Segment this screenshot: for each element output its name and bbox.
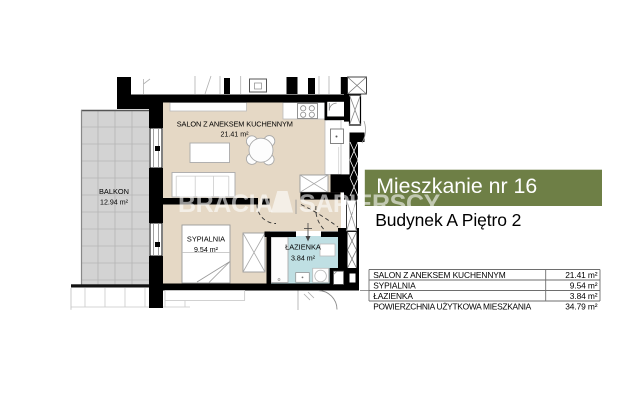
svg-text:34.79 m²: 34.79 m² bbox=[565, 301, 598, 311]
svg-text:3.84 m²: 3.84 m² bbox=[291, 254, 316, 262]
svg-text:21.41 m²: 21.41 m² bbox=[221, 131, 250, 139]
svg-text:ŁAZIENKA: ŁAZIENKA bbox=[285, 243, 321, 252]
svg-text:SYPIALNIA: SYPIALNIA bbox=[187, 234, 225, 243]
svg-text:21.41 m²: 21.41 m² bbox=[565, 270, 598, 280]
svg-text:9.54 m²: 9.54 m² bbox=[194, 246, 219, 254]
svg-text:SALON Z ANEKSEM KUCHENNYM: SALON Z ANEKSEM KUCHENNYM bbox=[177, 119, 293, 128]
svg-text:SYPIALNIA: SYPIALNIA bbox=[373, 280, 416, 290]
svg-text:3.84 m²: 3.84 m² bbox=[570, 291, 598, 301]
svg-text:12.94 m²: 12.94 m² bbox=[100, 199, 129, 207]
svg-text:POWIERZCHNIA UŻYTKOWA MIESZKAN: POWIERZCHNIA UŻYTKOWA MIESZKANIA bbox=[373, 301, 531, 311]
svg-text:SALON Z ANEKSEM KUCHENNYM: SALON Z ANEKSEM KUCHENNYM bbox=[373, 270, 506, 280]
svg-text:BRACIA: BRACIA bbox=[178, 190, 273, 218]
svg-text:BALKON: BALKON bbox=[99, 187, 129, 196]
svg-text:SAPIERSCY: SAPIERSCY bbox=[299, 190, 441, 218]
svg-text:9.54 m²: 9.54 m² bbox=[570, 280, 598, 290]
svg-text:ŁAZIENKA: ŁAZIENKA bbox=[373, 291, 413, 301]
